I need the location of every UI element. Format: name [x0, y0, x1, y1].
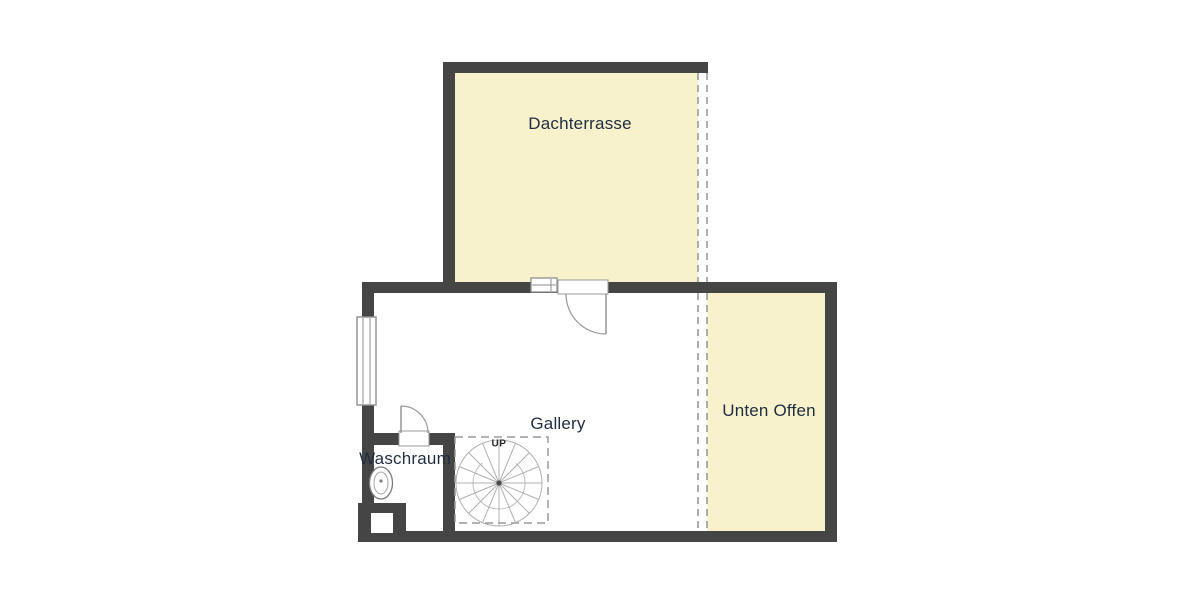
room-label-dachterrasse: Dachterrasse: [528, 114, 632, 134]
room-label-unten-offen: Unten Offen: [722, 401, 816, 421]
plan-symbols-layer: [0, 0, 1200, 600]
waschraum-door-swing-icon: [399, 406, 429, 446]
floor-plan: Dachterrasse Unten Offen Gallery Waschra…: [0, 0, 1200, 600]
toilet-icon: [370, 467, 393, 499]
room-label-gallery: Gallery: [530, 414, 585, 434]
sidelight-window-icon: [531, 278, 557, 292]
stair-direction-label: UP: [492, 439, 507, 450]
terrace-door-swing-icon: [558, 280, 608, 334]
open-edge-dashed-lines: [698, 73, 707, 530]
room-label-waschraum: Waschraum: [359, 449, 451, 469]
spiral-staircase-icon: [456, 440, 542, 526]
window-icon: [357, 317, 376, 405]
